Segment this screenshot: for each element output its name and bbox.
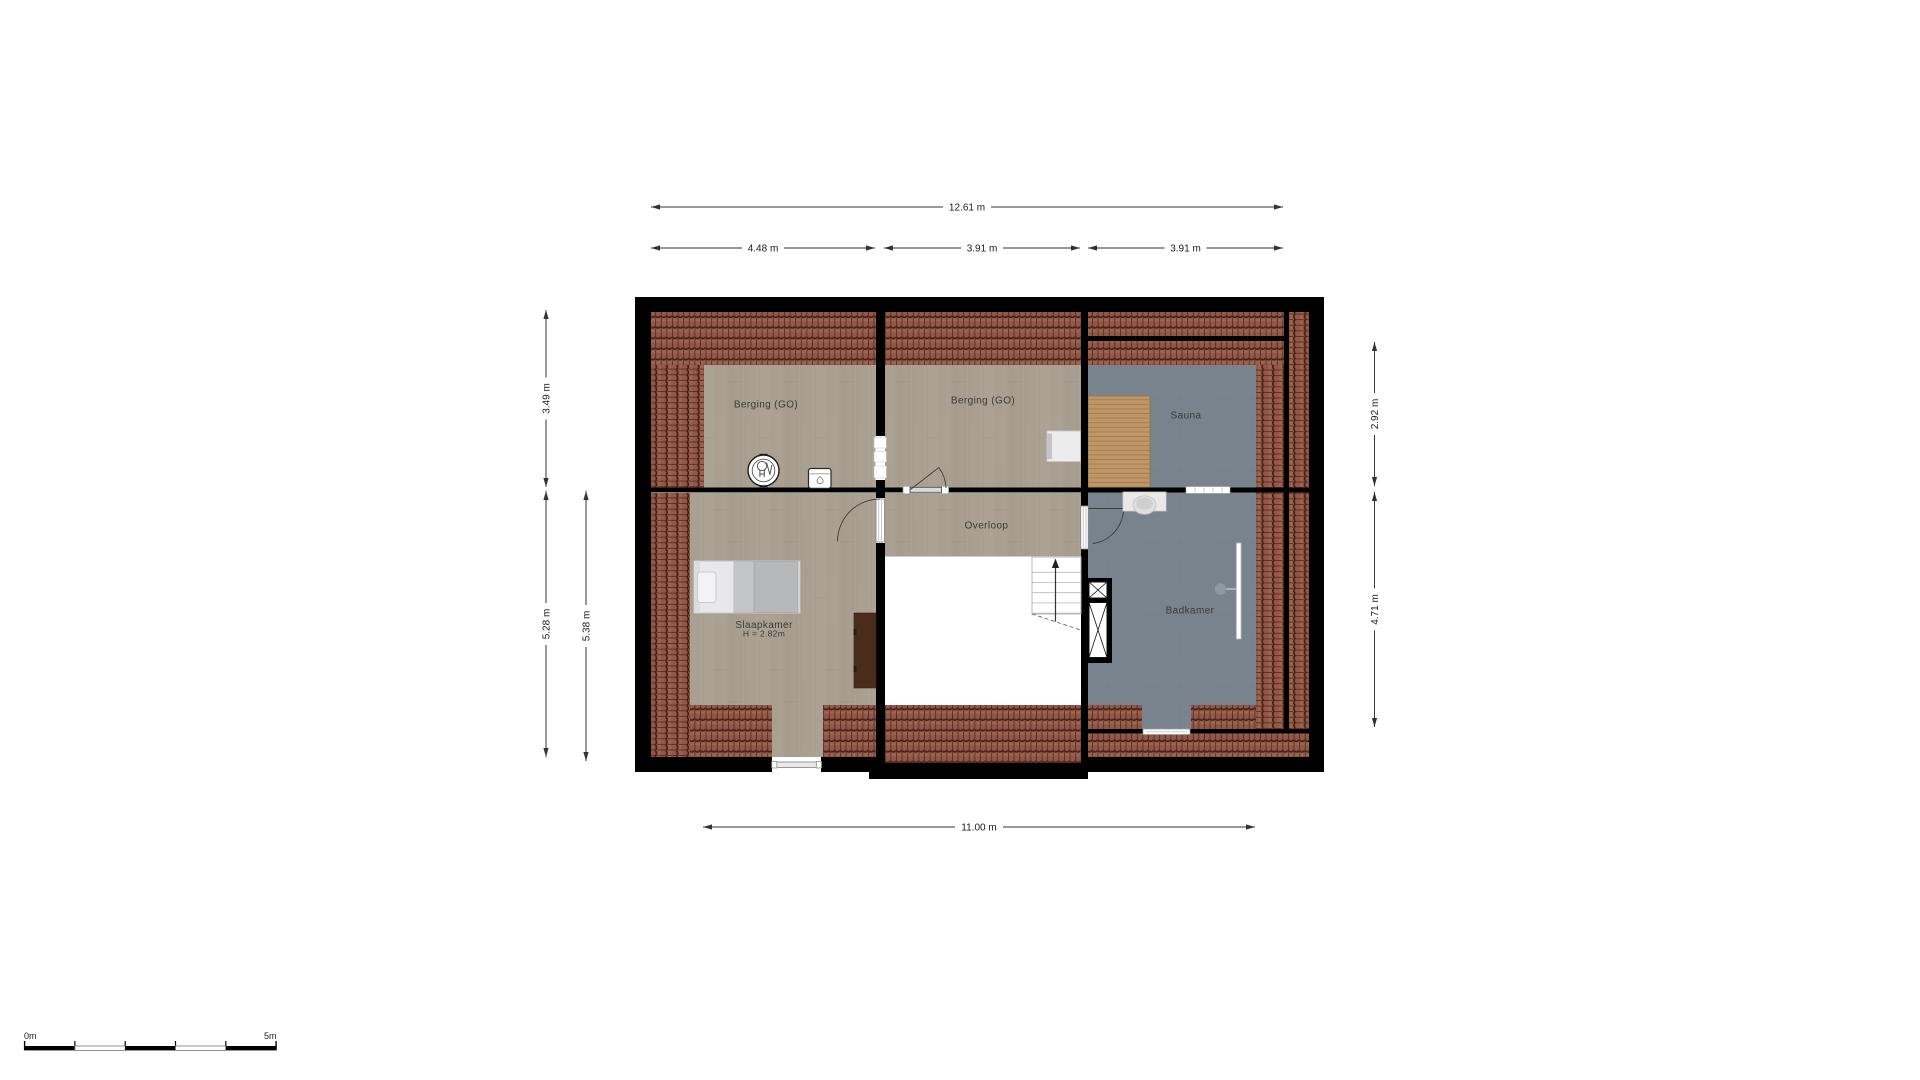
svg-text:3.91 m: 3.91 m bbox=[1170, 244, 1201, 255]
svg-text:5m: 5m bbox=[264, 1031, 277, 1041]
svg-text:5.38 m: 5.38 m bbox=[582, 611, 593, 642]
svg-text:4.48 m: 4.48 m bbox=[748, 244, 779, 255]
svg-text:Berging (GO): Berging (GO) bbox=[734, 400, 798, 411]
svg-text:0m: 0m bbox=[24, 1031, 37, 1041]
svg-text:4.71 m: 4.71 m bbox=[1370, 594, 1381, 625]
svg-text:Overloop: Overloop bbox=[965, 521, 1009, 532]
svg-text:12.61 m: 12.61 m bbox=[949, 203, 985, 214]
svg-text:5.28 m: 5.28 m bbox=[542, 609, 553, 640]
svg-text:3.91 m: 3.91 m bbox=[967, 244, 998, 255]
svg-text:3.49 m: 3.49 m bbox=[542, 383, 553, 414]
svg-text:Berging (GO): Berging (GO) bbox=[951, 396, 1015, 407]
svg-text:Badkamer: Badkamer bbox=[1166, 606, 1215, 617]
svg-text:2.92 m: 2.92 m bbox=[1370, 399, 1381, 430]
svg-text:11.00 m: 11.00 m bbox=[961, 823, 996, 834]
svg-text:Sauna: Sauna bbox=[1171, 411, 1202, 422]
svg-text:H = 2.82m: H = 2.82m bbox=[743, 629, 785, 639]
